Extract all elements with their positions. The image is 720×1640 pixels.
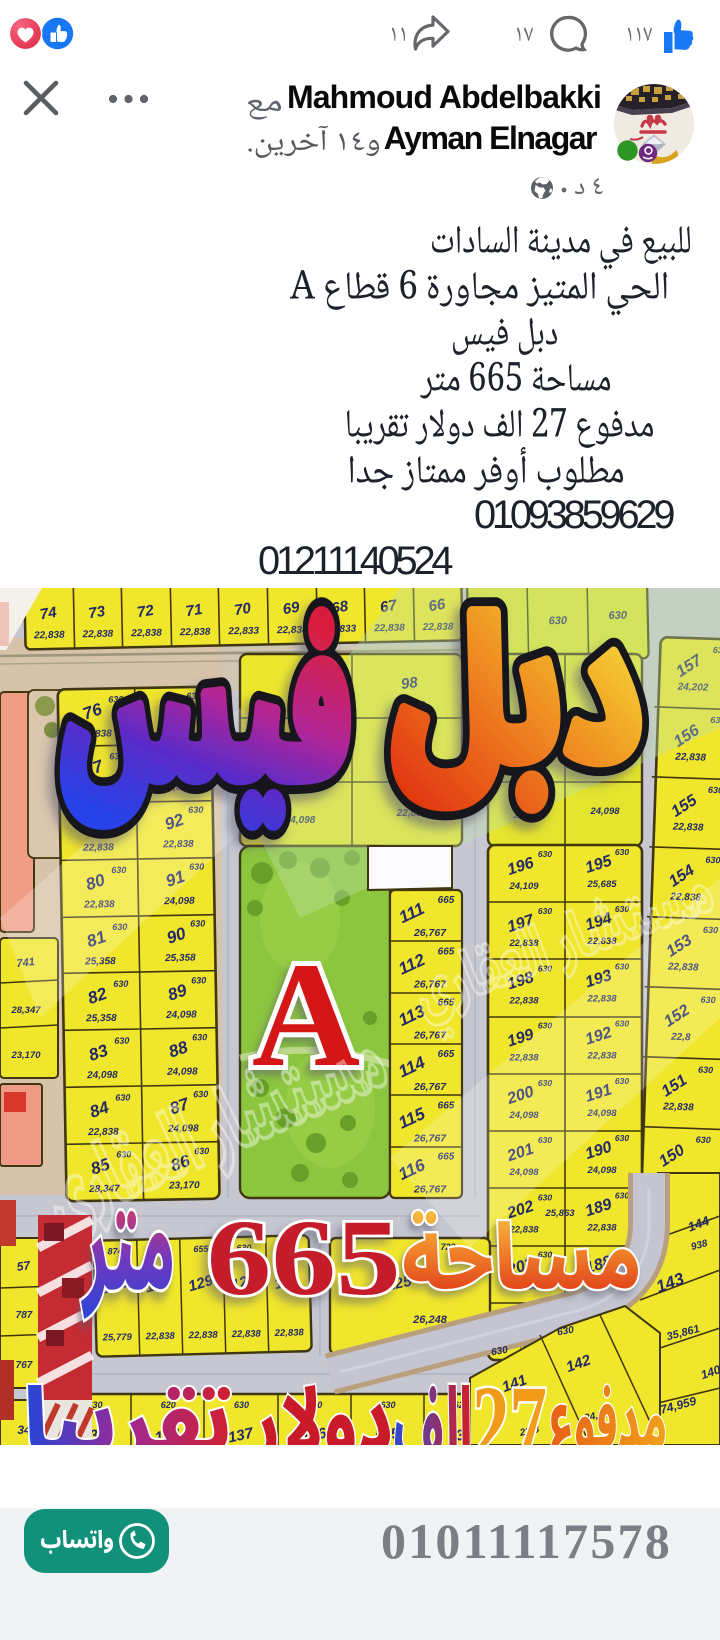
svg-text:73: 73	[87, 603, 107, 623]
svg-text:630: 630	[234, 1400, 249, 1410]
svg-text:22,833: 22,833	[227, 626, 259, 638]
svg-text:22,838: 22,838	[145, 1331, 176, 1343]
svg-text:630: 630	[538, 906, 552, 916]
svg-text:630: 630	[114, 1036, 129, 1046]
svg-text:22,838: 22,838	[508, 1224, 539, 1235]
svg-text:22,838: 22,838	[586, 1222, 617, 1233]
svg-text:24,098: 24,098	[165, 1009, 197, 1021]
svg-text:24,098: 24,098	[86, 1070, 118, 1082]
svg-text:630: 630	[538, 849, 552, 859]
svg-text:24,098: 24,098	[589, 806, 620, 817]
svg-text:25,863: 25,863	[544, 1208, 575, 1219]
svg-text:70: 70	[233, 600, 253, 620]
svg-text:25,358: 25,358	[164, 953, 196, 965]
svg-text:22,838: 22,838	[672, 822, 704, 834]
svg-text:787: 787	[16, 1310, 33, 1321]
svg-text:630: 630	[193, 1089, 208, 1099]
svg-text:665: 665	[438, 1049, 455, 1060]
svg-text:22,838: 22,838	[188, 1330, 219, 1342]
svg-text:630: 630	[115, 1092, 130, 1102]
svg-text:26,767: 26,767	[413, 927, 447, 939]
svg-text:630: 630	[190, 918, 205, 928]
svg-text:22,838: 22,838	[674, 752, 706, 764]
svg-text:767: 767	[16, 1360, 33, 1371]
svg-text:A: A	[252, 932, 360, 1098]
svg-text:22,838: 22,838	[508, 995, 539, 1006]
svg-text:72: 72	[136, 602, 156, 622]
svg-text:630: 630	[538, 1192, 552, 1202]
svg-text:630: 630	[113, 979, 128, 989]
svg-text:630: 630	[191, 975, 206, 985]
svg-text:630: 630	[698, 1065, 713, 1076]
svg-text:665: 665	[438, 895, 455, 906]
svg-text:630: 630	[615, 1133, 629, 1143]
svg-text:69: 69	[282, 599, 302, 619]
svg-text:23,170: 23,170	[10, 1050, 41, 1061]
svg-text:630: 630	[708, 785, 720, 796]
svg-text:22,838: 22,838	[130, 628, 162, 640]
svg-text:74: 74	[39, 604, 59, 624]
svg-text:22,838: 22,838	[33, 630, 65, 642]
svg-text:22,838: 22,838	[179, 627, 211, 639]
svg-text:22,838: 22,838	[82, 629, 114, 641]
svg-text:630: 630	[192, 1032, 207, 1042]
svg-text:655: 655	[193, 1244, 209, 1254]
svg-text:24,109: 24,109	[508, 881, 539, 892]
svg-text:22,838: 22,838	[231, 1328, 262, 1340]
svg-text:71: 71	[184, 601, 203, 620]
svg-text:25,779: 25,779	[102, 1332, 133, 1344]
svg-text:25,685: 25,685	[586, 879, 617, 890]
svg-text:24,098: 24,098	[166, 1066, 198, 1078]
svg-text:22,838: 22,838	[274, 1327, 305, 1339]
svg-text:630: 630	[696, 1135, 711, 1146]
svg-text:24,098: 24,098	[586, 1165, 617, 1176]
svg-text:630: 630	[615, 1190, 629, 1200]
svg-text:26,767: 26,767	[413, 1081, 447, 1093]
svg-text:630: 630	[615, 847, 629, 857]
svg-text:630: 630	[705, 855, 720, 866]
svg-text:23,170: 23,170	[168, 1180, 200, 1192]
svg-text:22,838: 22,838	[662, 1101, 694, 1113]
svg-text:665: 665	[438, 946, 455, 957]
svg-text:25,358: 25,358	[85, 1013, 117, 1025]
